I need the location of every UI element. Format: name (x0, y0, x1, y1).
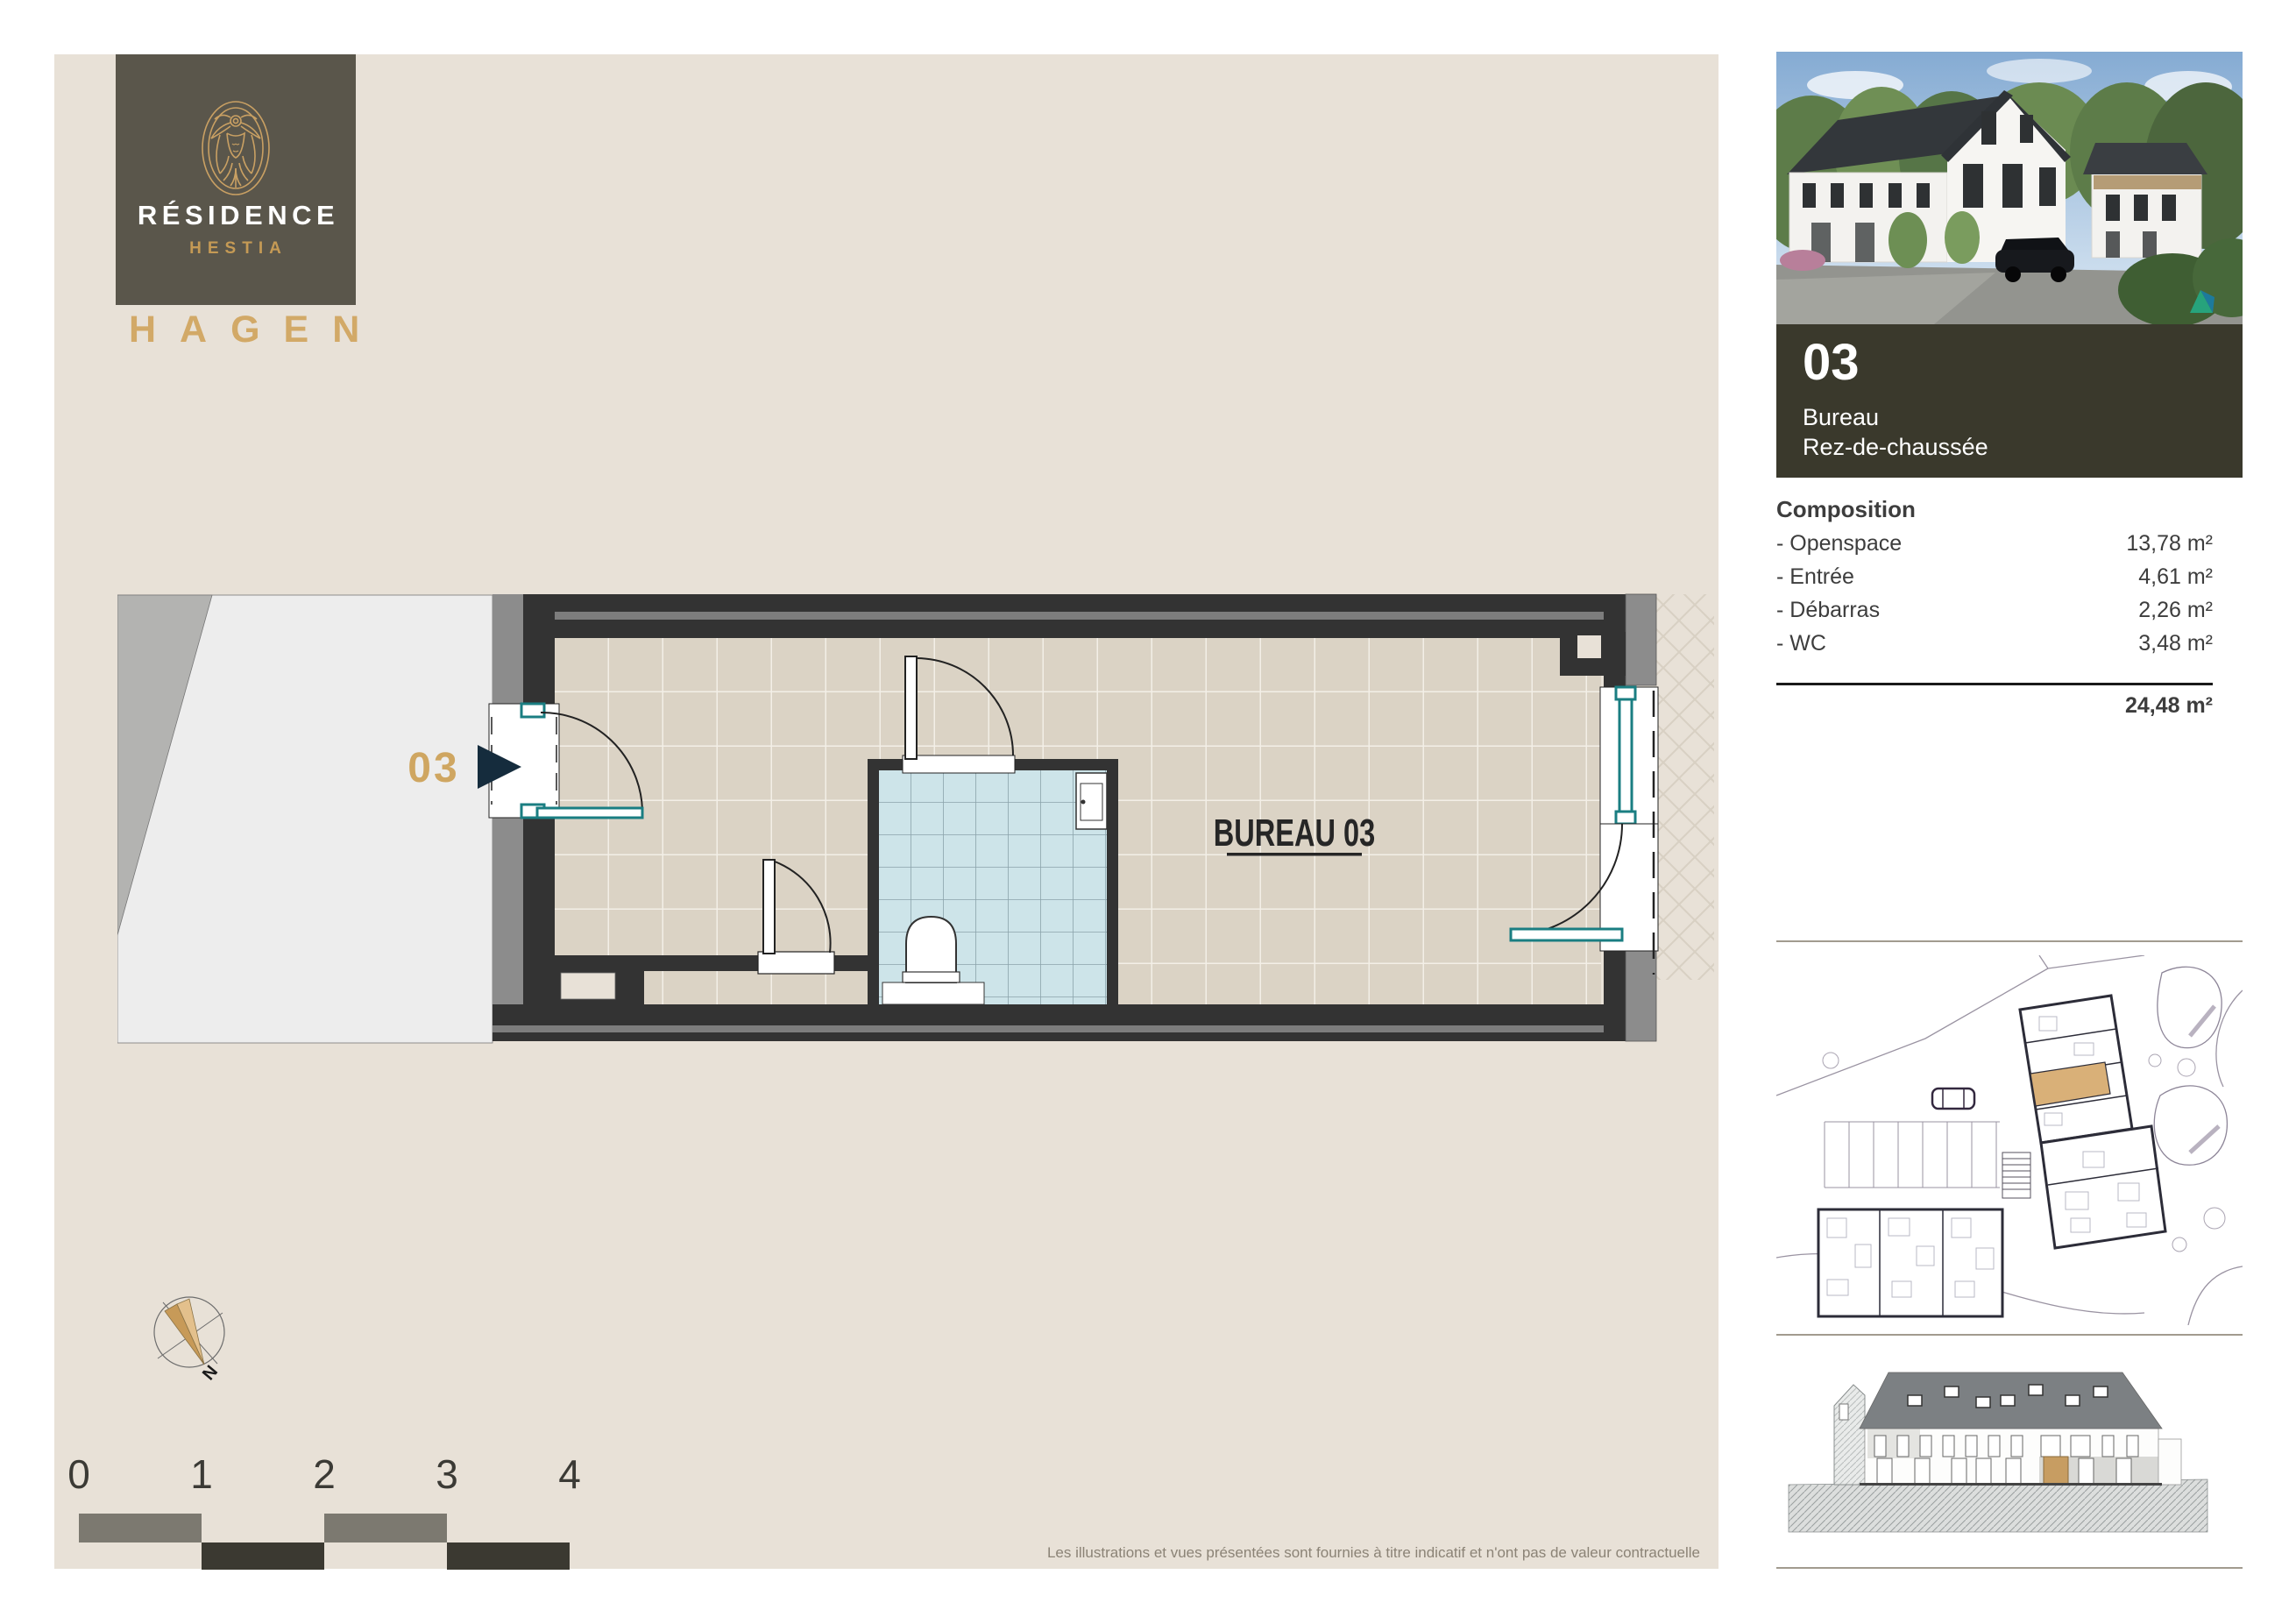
terrace-paving (1656, 594, 1714, 980)
divider (1776, 1567, 2243, 1569)
floor-plan: 03 BUREAU 03 (117, 589, 1714, 1048)
total-divider (1776, 683, 2213, 685)
room-name: - Openspace (1776, 531, 1902, 557)
scale-label: 4 (543, 1450, 596, 1498)
window (1600, 687, 1658, 824)
scale-segment (324, 1514, 447, 1542)
logo-box: RÉSIDENCE HESTIA (116, 54, 356, 305)
unit-number: 03 (1803, 337, 2243, 390)
scale-label: 2 (298, 1450, 351, 1498)
disclaimer-text: Les illustrations et vues présentées son… (1047, 1544, 1700, 1562)
brand-name: RÉSIDENCE (138, 200, 339, 231)
composition-row: - Débarras 2,26 m² (1776, 598, 2213, 623)
room-name: - Entrée (1776, 564, 1854, 590)
unit-type: Bureau (1803, 404, 2243, 431)
composition-title: Composition (1776, 496, 2213, 523)
site-plan (1776, 955, 2243, 1325)
brand-location: HAGEN (105, 308, 366, 351)
scale-segment (202, 1542, 324, 1570)
scale-label: 3 (421, 1450, 473, 1498)
room-name: - Débarras (1776, 598, 1880, 623)
hestia-goddess-icon (201, 100, 271, 196)
scale-label: 0 (53, 1450, 105, 1498)
brochure-page: RÉSIDENCE HESTIA HAGEN (0, 0, 2296, 1624)
svg-text:BUREAU 03: BUREAU 03 (1214, 812, 1375, 855)
total-area: 24,48 m² (1776, 693, 2213, 719)
elevation-ground (1789, 1479, 2207, 1532)
divider (1776, 1334, 2243, 1336)
divider (1776, 940, 2243, 942)
building-photo (1776, 52, 2243, 324)
unit-marker-number: 03 (407, 745, 459, 791)
room-area: 13,78 m² (2126, 531, 2213, 557)
compass-north-label: N (199, 1362, 222, 1384)
scale-segment (79, 1514, 202, 1542)
scale-label: 1 (175, 1450, 228, 1498)
scale-segment (447, 1542, 570, 1570)
sink-icon (1076, 773, 1107, 829)
room-label: BUREAU 03 (1214, 812, 1375, 855)
composition-row: - Openspace 13,78 m² (1776, 531, 2213, 557)
unit-floor: Rez-de-chaussée (1803, 434, 2243, 461)
room-area: 3,48 m² (2138, 631, 2213, 656)
highlighted-unit-door (2044, 1457, 2068, 1485)
elevation-building (1834, 1372, 2181, 1486)
compass-icon: N (147, 1288, 244, 1398)
common-hall-area (117, 595, 493, 1043)
composition-block: Composition - Openspace 13,78 m² - Entré… (1776, 496, 2213, 719)
site-building-left (1818, 1209, 2002, 1316)
room-area: 4,61 m² (2138, 564, 2213, 590)
building-elevation (1776, 1351, 2243, 1560)
room-area: 2,26 m² (2138, 598, 2213, 623)
composition-row: - WC 3,48 m² (1776, 631, 2213, 656)
room-name: - WC (1776, 631, 1826, 656)
composition-row: - Entrée 4,61 m² (1776, 564, 2213, 590)
site-stair-core (2002, 1152, 2030, 1198)
brand-subname: HESTIA (189, 239, 287, 259)
unit-info-box: 03 Bureau Rez-de-chaussée (1776, 324, 2243, 478)
